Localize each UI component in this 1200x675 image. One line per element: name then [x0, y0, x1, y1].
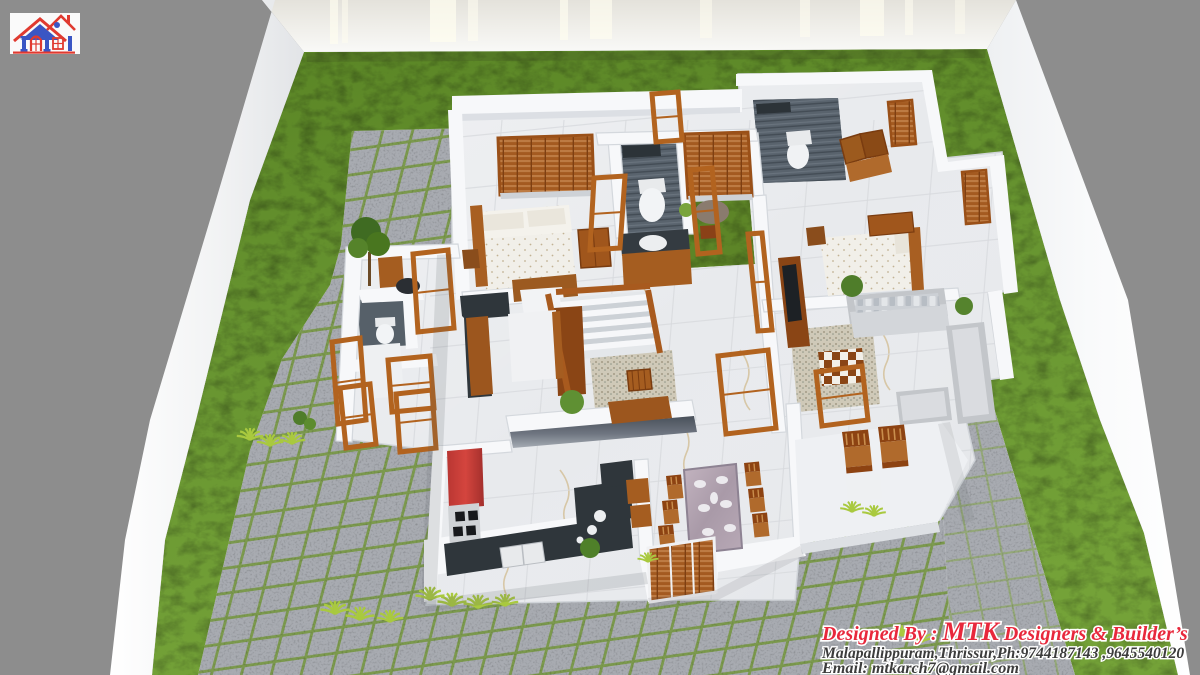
svg-text:Email: mtkarch7@gmail.com: Email: mtkarch7@gmail.com: [821, 659, 1019, 675]
